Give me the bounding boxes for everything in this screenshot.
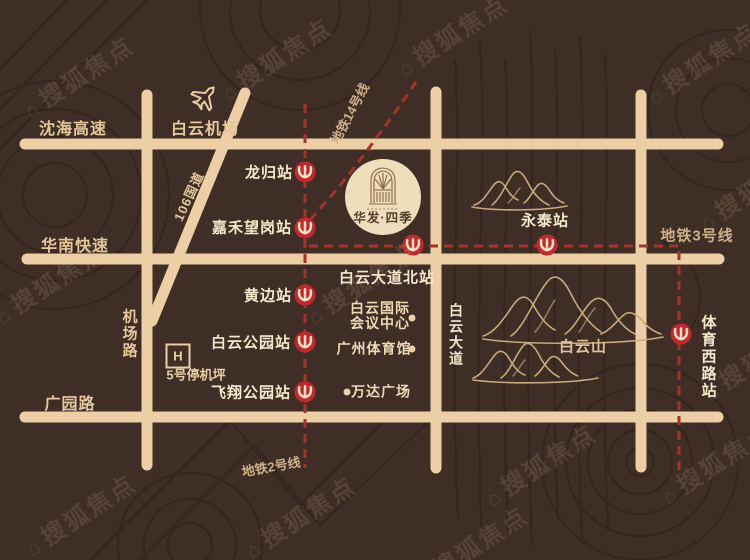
- label-station-yongtai: 永泰站: [521, 210, 569, 231]
- label-station-baiyun-park: 白云公园站: [211, 332, 291, 353]
- station-marker-baiyun-park: [294, 331, 317, 354]
- label-station-huangbian: 黄边站: [244, 285, 292, 306]
- label-shenhai-expwy: 沈海高速: [39, 115, 107, 139]
- poi-dot-wanda-plaza: [344, 389, 351, 396]
- label-gymnasium: 广州体育馆: [337, 342, 412, 357]
- station-marker-jiahewanggang: [294, 217, 317, 240]
- label-station-longgui: 龙归站: [245, 162, 293, 183]
- project-badge: 华发·四季: [345, 159, 421, 235]
- label-baiyun-airport: 白云机场: [171, 115, 239, 139]
- label-baiyun-mountain: 白云山: [559, 336, 607, 357]
- location-map: H 华发·四季 沈海高速 华南快速 广园路 106国道 机场路 白云大道 白云机…: [0, 0, 750, 560]
- station-marker-feixiang-park: [294, 381, 317, 404]
- label-airport-rd: 机场路: [119, 309, 140, 360]
- label-guangyuan-rd: 广园路: [44, 390, 95, 414]
- label-wanda-plaza: 万达广场: [351, 385, 411, 400]
- label-station-feixiang-park: 飞翔公园站: [211, 382, 291, 403]
- station-marker-yongtai: [536, 234, 559, 257]
- station-marker-longgui: [294, 161, 317, 184]
- label-convention-center-line2: 会议中心: [350, 316, 410, 331]
- label-convention-center: 白云国际 会议中心: [350, 301, 410, 331]
- station-marker-tiyu-xilu: [670, 323, 693, 346]
- label-station-jiahewanggang: 嘉禾望岗站: [212, 217, 292, 238]
- label-baiyun-ave: 白云大道: [446, 303, 466, 367]
- badge-title: 华发·四季: [353, 207, 412, 226]
